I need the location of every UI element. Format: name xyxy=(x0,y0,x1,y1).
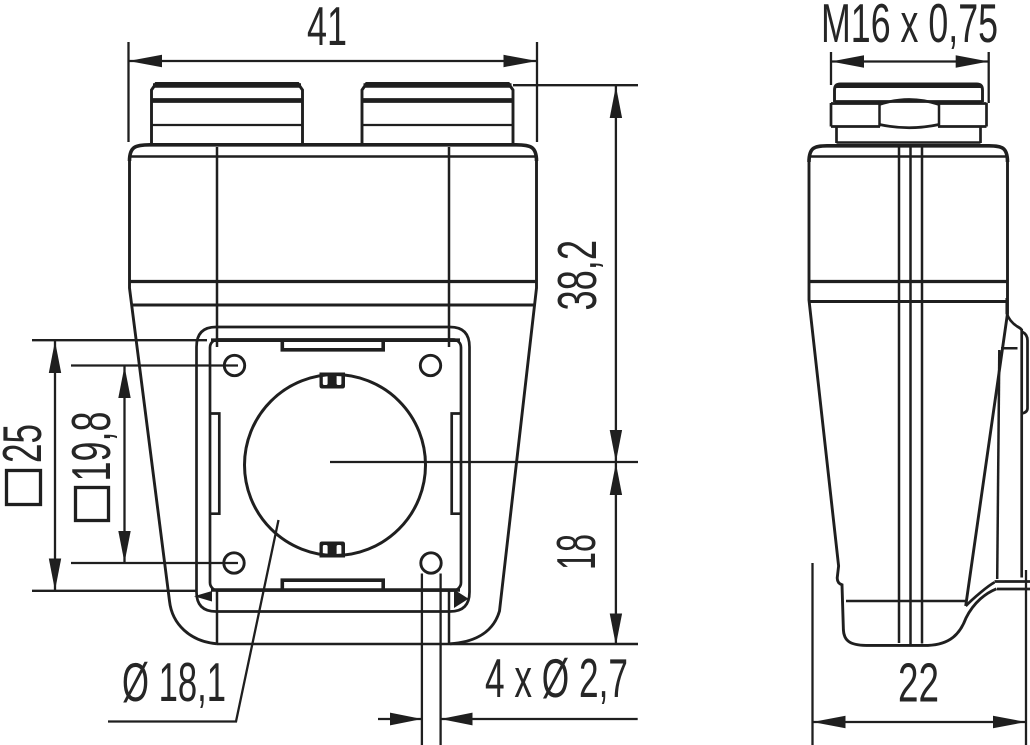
svg-text:Ø 18,1: Ø 18,1 xyxy=(122,651,226,713)
svg-text:25: 25 xyxy=(0,424,53,463)
svg-text:38,2: 38,2 xyxy=(546,240,608,311)
svg-text:4 x Ø 2,7: 4 x Ø 2,7 xyxy=(485,647,628,709)
svg-text:M16 x 0,75: M16 x 0,75 xyxy=(821,0,998,54)
svg-text:19,8: 19,8 xyxy=(60,412,122,482)
svg-text:18: 18 xyxy=(545,534,607,570)
svg-text:22: 22 xyxy=(898,652,939,714)
svg-text:41: 41 xyxy=(307,0,347,57)
